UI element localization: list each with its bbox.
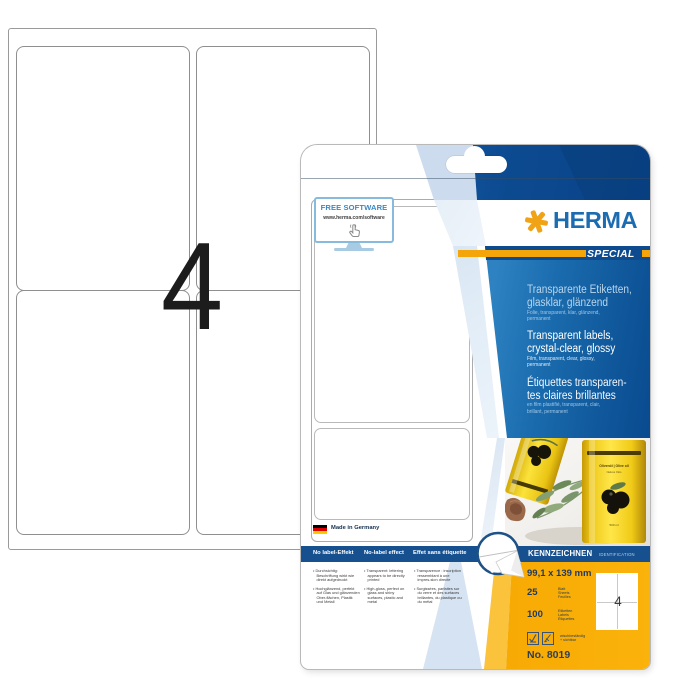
svg-text:500 ml: 500 ml xyxy=(609,523,618,527)
svg-text:Natives Oléo: Natives Oléo xyxy=(607,470,622,474)
svg-text:Olivenöl | Olive oil: Olivenöl | Olive oil xyxy=(599,464,628,468)
